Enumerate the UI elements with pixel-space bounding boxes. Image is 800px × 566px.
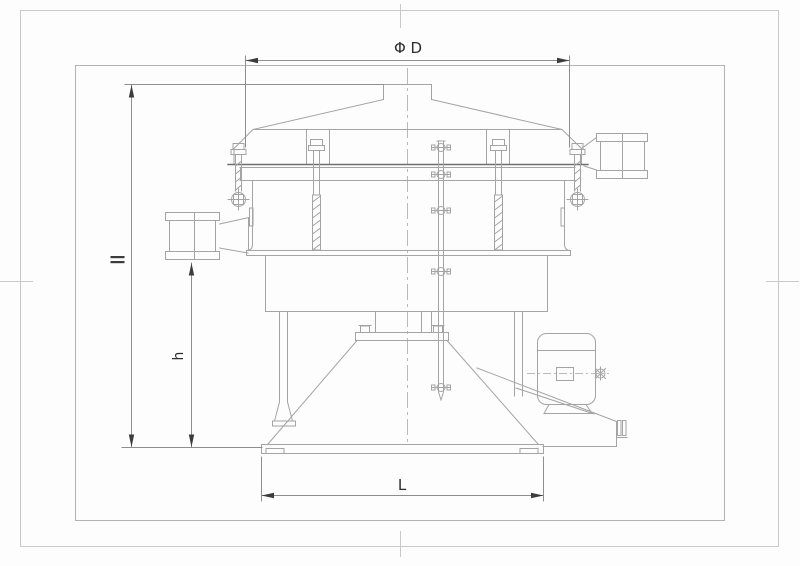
tie-rod-nut: [432, 384, 451, 392]
illegible-dimension-text: [111, 256, 125, 263]
clamp-rod-right: [491, 140, 507, 251]
tie-rod-nut: [432, 268, 451, 276]
outlet-left: [166, 213, 250, 260]
sheet-frame: [0, 4, 799, 557]
dimension-length: L: [262, 457, 544, 501]
dimension-h: h: [171, 263, 194, 447]
screen-body: [247, 181, 571, 256]
outlet-right: [582, 134, 648, 179]
center-tie-rod: [432, 141, 451, 400]
tie-rod-nut: [432, 207, 451, 215]
h-label: h: [171, 352, 187, 361]
sieve-machine: [166, 85, 648, 454]
length-label: L: [398, 476, 407, 494]
motor: [527, 334, 609, 414]
lower-frame: [266, 256, 548, 312]
technical-drawing: Φ D h L: [0, 0, 800, 566]
drawing-sheet: Φ D h L: [0, 0, 800, 566]
support-leg-left: [273, 312, 296, 427]
outer-border: [21, 11, 779, 547]
tie-rod-nut: [432, 171, 451, 179]
diameter-label: Φ D: [394, 39, 422, 57]
clamp-bolt-right-outer: [567, 144, 588, 211]
clamp-bolt-left-outer: [228, 144, 249, 211]
discharge-cone: [268, 312, 538, 445]
base-plate: [262, 445, 544, 454]
tie-rod-nut: [432, 144, 451, 152]
dimension-total-height: [111, 85, 384, 448]
motor-bracket: [477, 368, 627, 447]
clamp-rod-left: [309, 140, 325, 251]
